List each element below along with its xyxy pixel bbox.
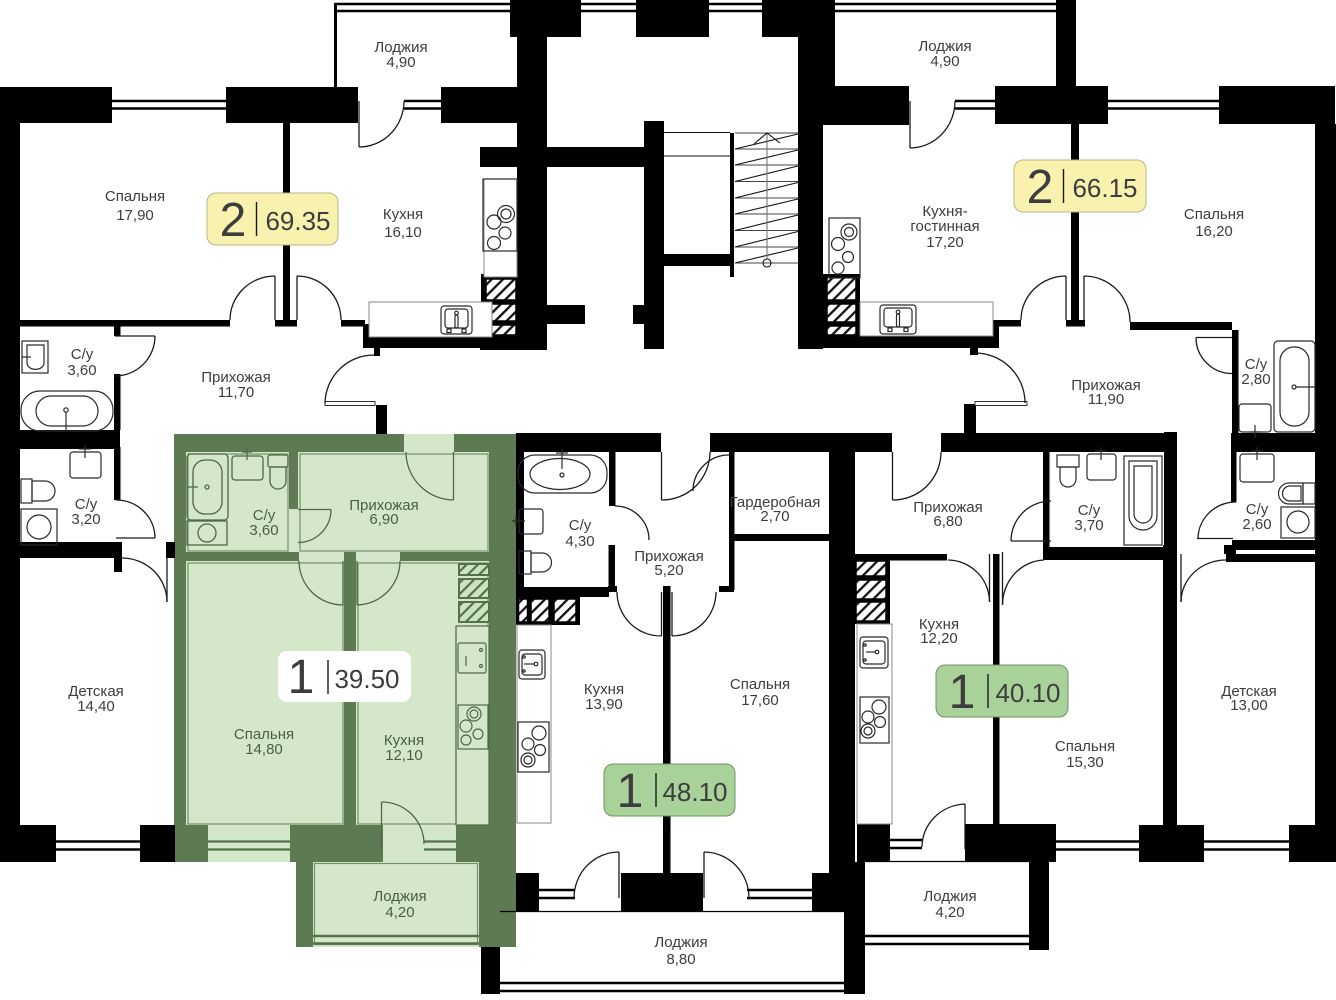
- svg-text:1: 1: [949, 666, 976, 719]
- svg-text:69.35: 69.35: [265, 206, 330, 236]
- svg-text:3,60: 3,60: [67, 362, 96, 379]
- svg-text:Спальня: Спальня: [1055, 738, 1115, 755]
- svg-text:66.15: 66.15: [1072, 173, 1137, 203]
- svg-text:1: 1: [288, 651, 315, 704]
- svg-text:11,70: 11,70: [218, 384, 254, 401]
- svg-text:Лоджия: Лоджия: [373, 888, 426, 905]
- svg-text:17,20: 17,20: [926, 234, 964, 251]
- svg-text:3,60: 3,60: [249, 522, 278, 539]
- svg-text:17,90: 17,90: [116, 207, 154, 224]
- svg-text:Лоджия: Лоджия: [654, 934, 707, 951]
- svg-text:2: 2: [220, 194, 247, 247]
- svg-text:5,20: 5,20: [654, 562, 683, 579]
- svg-text:4,20: 4,20: [935, 904, 964, 921]
- svg-text:Спальня: Спальня: [1184, 206, 1244, 223]
- svg-text:12,10: 12,10: [385, 747, 423, 764]
- svg-text:13,00: 13,00: [1230, 697, 1268, 714]
- svg-text:14,40: 14,40: [77, 698, 115, 715]
- svg-text:4,20: 4,20: [385, 904, 414, 921]
- svg-text:16,10: 16,10: [384, 224, 422, 241]
- svg-text:2: 2: [1027, 161, 1054, 214]
- svg-text:8,80: 8,80: [666, 951, 695, 968]
- svg-text:16,20: 16,20: [1195, 223, 1233, 240]
- svg-text:12,20: 12,20: [920, 630, 958, 647]
- svg-text:4,30: 4,30: [565, 533, 594, 550]
- svg-text:С/у: С/у: [569, 517, 592, 534]
- svg-text:17,60: 17,60: [741, 692, 779, 709]
- svg-text:39.50: 39.50: [334, 664, 399, 694]
- svg-text:Спальня: Спальня: [105, 188, 165, 205]
- svg-text:40.10: 40.10: [995, 678, 1060, 708]
- svg-text:2,80: 2,80: [1241, 371, 1270, 388]
- svg-text:48.10: 48.10: [662, 777, 727, 807]
- svg-text:Спальня: Спальня: [730, 676, 790, 693]
- svg-text:гостинная: гостинная: [910, 218, 979, 235]
- svg-text:13,90: 13,90: [585, 696, 623, 713]
- svg-text:2,70: 2,70: [760, 508, 789, 525]
- svg-text:14,80: 14,80: [245, 741, 283, 758]
- svg-text:С/у: С/у: [71, 346, 94, 363]
- svg-text:3,20: 3,20: [71, 511, 100, 528]
- svg-text:15,30: 15,30: [1066, 754, 1104, 771]
- svg-text:6,80: 6,80: [933, 513, 962, 530]
- svg-text:11,90: 11,90: [1088, 391, 1124, 408]
- svg-text:Лоджия: Лоджия: [923, 888, 976, 905]
- svg-text:Кухня: Кухня: [383, 206, 423, 223]
- svg-text:1: 1: [617, 765, 644, 818]
- svg-text:2,60: 2,60: [1242, 516, 1271, 533]
- svg-text:4,90: 4,90: [930, 53, 959, 70]
- svg-text:3,70: 3,70: [1074, 517, 1103, 534]
- svg-text:6,90: 6,90: [369, 511, 398, 528]
- svg-text:4,90: 4,90: [386, 54, 415, 71]
